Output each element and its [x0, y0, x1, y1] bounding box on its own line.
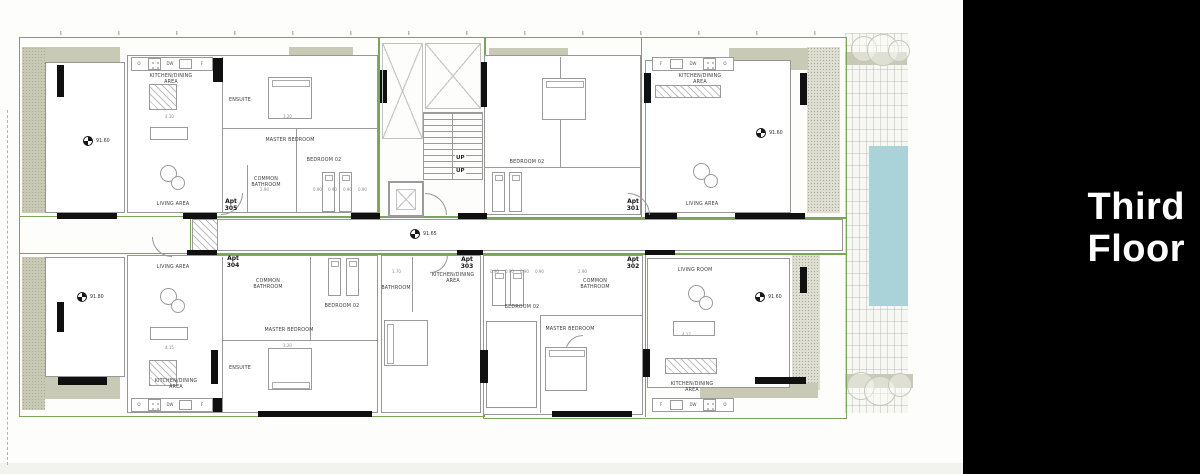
- appliance-fridge: F: [655, 59, 667, 69]
- single-bed: [322, 172, 335, 212]
- sofa: [150, 127, 188, 140]
- corridor: [192, 219, 843, 251]
- partition: [222, 257, 223, 413]
- coffee-table: [699, 296, 713, 310]
- room-label-living-302: LIVING ROOM: [673, 268, 717, 274]
- sofa: [150, 327, 188, 340]
- level-marker-corridor: 91.65: [410, 229, 437, 239]
- floor-plan-page: UP UP O DW F F DW O O DW F F DW O: [0, 0, 1200, 474]
- wall-bar: [481, 62, 487, 107]
- room-label-living-305: LIVING AREA: [153, 202, 193, 208]
- appliance-oven: O: [719, 400, 731, 410]
- level-marker-icon: [756, 128, 766, 138]
- pillow: [349, 261, 357, 267]
- pillow: [546, 81, 584, 88]
- stair-up-label: UP: [455, 168, 466, 174]
- level-marker-icon: [410, 229, 420, 239]
- double-bed: [268, 77, 312, 119]
- stair-rail: [452, 112, 453, 180]
- kitchen-island: [665, 358, 717, 374]
- dim-label: 1.70: [392, 269, 401, 274]
- room-label-kitchen-302: KITCHEN/DINING AREA: [670, 382, 714, 394]
- pillow: [387, 324, 394, 364]
- site-boundary-dashed: [7, 110, 9, 465]
- wall-bar: [57, 213, 117, 219]
- room-label-living-301: LIVING AREA: [682, 202, 722, 208]
- apt-tag-304: Apt304: [220, 256, 246, 270]
- floor-title-line2: Floor: [1088, 228, 1185, 270]
- level-marker-apt302: 91.60: [755, 292, 782, 302]
- partition: [223, 340, 377, 341]
- terrace-planter: [807, 47, 840, 213]
- wall-bar: [800, 267, 807, 293]
- apt-tag-302: Apt302: [620, 257, 646, 271]
- dim-label: 3.20: [283, 343, 292, 348]
- dim-label: 3.20: [283, 114, 292, 119]
- room-label-bathroom-303: BATHROOM: [378, 286, 414, 292]
- double-bed: [545, 347, 587, 391]
- appliance-dishwasher: DW: [686, 59, 700, 69]
- dim-label: 0.90: [358, 187, 367, 192]
- wall-bar: [58, 377, 107, 385]
- room-label-ensuite-304: ENSUITE: [225, 366, 255, 372]
- apt-tag-number: 303: [454, 264, 480, 271]
- appliance-oven: O: [133, 59, 145, 69]
- room-label-commonbath-302: COMMON BATHROOM: [578, 279, 612, 291]
- dim-label: 0.90: [313, 187, 322, 192]
- balcony-apt303: [486, 321, 537, 408]
- balcony-planter: [45, 47, 120, 62]
- staircase: [423, 112, 483, 180]
- level-marker-icon: [83, 136, 93, 146]
- floor-title-line1: Third: [1088, 186, 1185, 228]
- apt-tag-305: Apt305: [218, 199, 244, 213]
- core-void: [425, 43, 481, 109]
- coffee-table: [171, 299, 185, 313]
- wall-bar: [213, 58, 223, 82]
- level-marker-apt304: 91.80: [77, 292, 104, 302]
- sink-icon: [179, 400, 192, 410]
- wall-bar: [183, 213, 217, 219]
- level-marker-apt301: 91.60: [756, 128, 783, 138]
- sofa: [673, 321, 715, 336]
- dim-label: 2.90: [260, 187, 269, 192]
- level-value: 91.80: [90, 295, 104, 300]
- appliance-oven: O: [719, 59, 731, 69]
- single-bed: [492, 270, 506, 306]
- wall-bar: [480, 350, 488, 383]
- apt-tag-301: Apt301: [620, 199, 646, 213]
- boundary-left-link: [19, 215, 20, 253]
- room-label-bedroom2-301: BEDROOM 02: [507, 160, 547, 166]
- boundary-terrace-bottom: [645, 253, 646, 417]
- level-value: 91.60: [96, 139, 110, 144]
- apt-tag-number: 302: [620, 264, 646, 271]
- double-bed: [384, 320, 428, 366]
- balcony-planter: [22, 257, 45, 410]
- room-label-living-304: LIVING AREA: [153, 265, 193, 271]
- room-label-bedroom2-302: BEDROOM 02: [502, 305, 542, 311]
- pool: [869, 146, 908, 306]
- room-label-master-305: MASTER BEDROOM: [262, 138, 318, 144]
- single-bed: [346, 258, 359, 296]
- corridor-end-hatch: [192, 219, 218, 251]
- single-bed: [339, 172, 352, 212]
- pillow: [272, 80, 310, 87]
- partition: [247, 165, 248, 213]
- dim-label: 4.17: [682, 332, 691, 337]
- room-label-bedroom2-304: BEDROOM 02: [322, 304, 362, 310]
- partition: [540, 315, 643, 316]
- room-label-ensuite-305: ENSUITE: [225, 98, 255, 104]
- dim-label: 0.90: [535, 269, 544, 274]
- core-void: [382, 43, 423, 139]
- room-label-kitchen-303: KITCHEN/DINING AREA: [431, 273, 475, 285]
- pillow: [325, 175, 333, 181]
- partition: [223, 128, 377, 129]
- appliance-fridge: F: [196, 59, 208, 69]
- wall-bar: [187, 250, 217, 255]
- dim-label: 4.15: [165, 345, 174, 350]
- level-marker-icon: [755, 292, 765, 302]
- dim-label: 0.90: [520, 269, 529, 274]
- partition: [484, 167, 641, 168]
- room-label-bedroom2-305: BEDROOM 02: [304, 158, 344, 164]
- floor-title: Third Floor: [1088, 186, 1185, 270]
- tree-icon: [888, 40, 910, 62]
- wall-bar: [458, 213, 487, 219]
- appliance-oven: O: [133, 400, 145, 410]
- wall-bar: [57, 302, 64, 332]
- room-label-commonbath-304: COMMON BATHROOM: [251, 279, 285, 291]
- single-bed: [509, 172, 522, 212]
- pillow: [495, 175, 503, 181]
- apt-tag-number: 305: [218, 206, 244, 213]
- single-bed: [492, 172, 505, 212]
- wall-bar: [57, 65, 64, 97]
- coffee-table: [171, 176, 185, 190]
- single-bed: [328, 258, 341, 296]
- wall-bar: [735, 213, 805, 219]
- partition: [412, 257, 413, 312]
- level-value: 91.60: [768, 295, 782, 300]
- dimension-ticks: [60, 31, 840, 35]
- pillow: [331, 261, 339, 267]
- appliance-dishwasher: DW: [686, 400, 700, 410]
- dim-label: 4.10: [165, 114, 174, 119]
- dim-label: 0.90: [505, 269, 514, 274]
- room-label-kitchen-301: KITCHEN/DINING AREA: [678, 74, 722, 86]
- partition: [540, 316, 541, 413]
- level-value: 91.65: [423, 232, 437, 237]
- sink-icon: [670, 59, 683, 69]
- wall-bar: [645, 250, 675, 255]
- wall-bar: [213, 398, 222, 412]
- wall-bar: [800, 73, 807, 105]
- sink-icon: [670, 400, 683, 410]
- appliance-fridge: F: [655, 400, 667, 410]
- kitchen-island: [655, 85, 721, 98]
- wall-bar: [643, 349, 650, 377]
- tree-icon: [888, 373, 912, 397]
- apt-tag-number: 301: [620, 206, 646, 213]
- pillow: [342, 175, 350, 181]
- wall-bar: [351, 213, 380, 219]
- elevator-cab: [396, 189, 416, 210]
- room-label-master-302: MASTER BEDROOM: [542, 327, 598, 333]
- room-label-master-304: MASTER BEDROOM: [261, 328, 317, 334]
- wall-bar: [258, 411, 372, 417]
- appliance-dishwasher: DW: [163, 400, 177, 410]
- appliance-hob-icon: [703, 399, 716, 411]
- ground-shade: [0, 463, 963, 474]
- wall-bar: [457, 250, 483, 255]
- level-marker-apt305: 91.60: [83, 136, 110, 146]
- title-panel: Third Floor: [963, 0, 1200, 474]
- dim-label: 0.90: [490, 269, 499, 274]
- apt-tag-number: 304: [220, 263, 246, 270]
- dim-label: 0.90: [343, 187, 352, 192]
- level-value: 91.60: [769, 131, 783, 136]
- room-label-kitchen-305: KITCHEN/DINING AREA: [149, 74, 193, 86]
- pillow: [549, 350, 585, 357]
- double-bed: [268, 348, 312, 390]
- appliance-hob-icon: [703, 58, 716, 70]
- room-label-kitchen-304: KITCHEN/DINING AREA: [154, 379, 198, 391]
- apt-tag-303: Apt303: [454, 257, 480, 271]
- dim-label: 2.90: [578, 269, 587, 274]
- double-bed: [542, 78, 586, 120]
- sink-icon: [179, 59, 192, 69]
- balcony-planter: [22, 47, 45, 213]
- wall-bar: [755, 377, 806, 384]
- appliance-dishwasher: DW: [163, 59, 177, 69]
- stair-up-label: UP: [455, 155, 466, 161]
- dining-table: [149, 84, 177, 110]
- pillow: [512, 175, 520, 181]
- wall-bar: [644, 73, 651, 103]
- appliance-hob-icon: [148, 58, 161, 70]
- appliance-fridge: F: [196, 400, 208, 410]
- wall-bar: [552, 411, 632, 417]
- coffee-table: [704, 174, 718, 188]
- level-marker-icon: [77, 292, 87, 302]
- wall-bar: [211, 350, 218, 384]
- single-bed: [510, 270, 524, 306]
- boundary-terrace-top: [641, 37, 642, 217]
- appliance-hob-icon: [148, 399, 161, 411]
- dim-label: 0.90: [328, 187, 337, 192]
- pillow: [272, 382, 310, 389]
